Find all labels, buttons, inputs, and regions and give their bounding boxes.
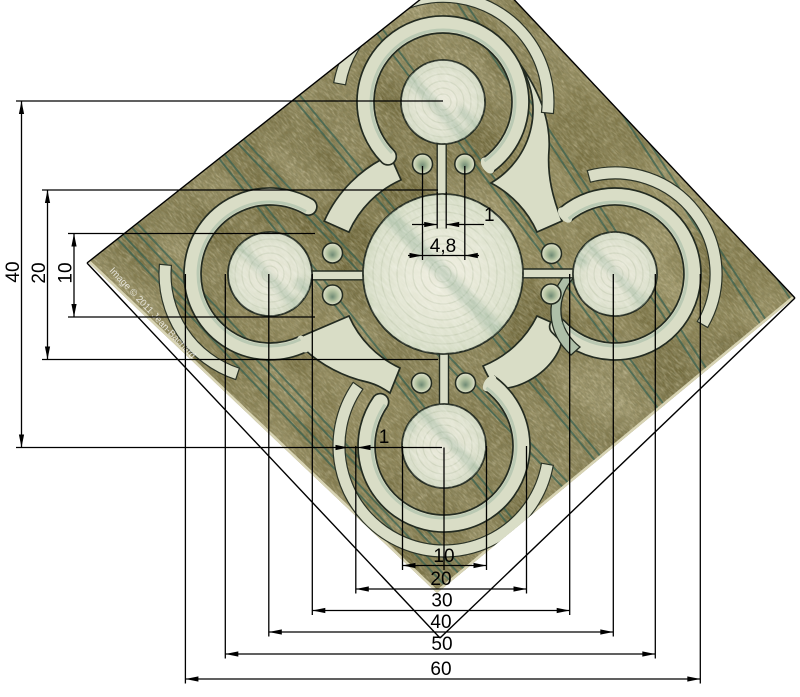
svg-text:60: 60 (430, 659, 451, 680)
svg-text:50: 50 (431, 634, 452, 655)
svg-text:30: 30 (431, 591, 452, 612)
svg-text:20: 20 (430, 569, 451, 590)
svg-text:1: 1 (484, 205, 495, 226)
svg-text:20: 20 (29, 262, 50, 283)
svg-text:4,8: 4,8 (430, 236, 456, 257)
svg-text:1: 1 (379, 427, 390, 448)
svg-text:10: 10 (56, 262, 77, 283)
svg-text:10: 10 (433, 546, 454, 567)
svg-text:40: 40 (430, 612, 451, 633)
svg-text:40: 40 (3, 261, 24, 282)
